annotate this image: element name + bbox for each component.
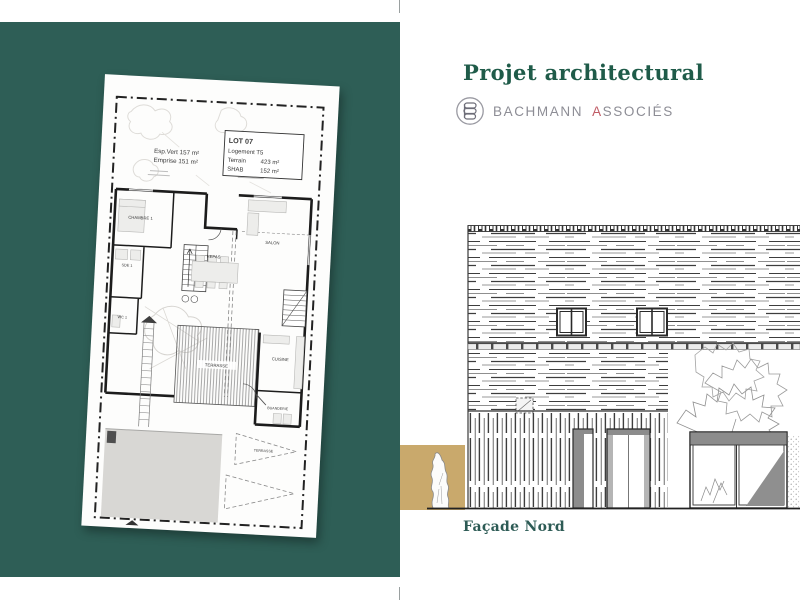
upper-cladding — [468, 232, 800, 343]
room-label-wc1: WC 1 — [117, 315, 127, 319]
facade-drawing — [425, 223, 800, 515]
facade-elevation — [425, 223, 800, 515]
stair-secondary — [282, 290, 307, 327]
north-marker — [125, 520, 138, 526]
brand-block: BACHMANNASSOCIÉS — [455, 96, 674, 126]
door-opening — [607, 429, 650, 508]
roof-cornice — [468, 226, 800, 232]
room-label-cuisine: CUISINE — [272, 356, 289, 362]
window-opening — [573, 429, 593, 508]
brand-name: BACHMANNASSOCIÉS — [493, 104, 674, 119]
room-label-sde1: SDE 1 — [121, 263, 132, 268]
facade-caption: Façade Nord — [463, 519, 565, 535]
center-divider-tick-bottom — [399, 587, 400, 600]
emprise-label: Emprise 151 m² — [153, 157, 198, 166]
patio-area — [101, 429, 222, 523]
lot-title: LOT 07 — [228, 136, 253, 146]
plan-symbol — [182, 295, 189, 302]
mid-cladding — [468, 350, 668, 411]
page-title: Projet architectural — [463, 60, 704, 85]
shrub-sketch — [431, 453, 449, 508]
trellis — [139, 323, 154, 427]
brand-word2-initial: A — [592, 104, 603, 119]
lot-terrain-label: Terrain — [227, 158, 246, 165]
brand-word2-rest: SSOCIÉS — [603, 104, 674, 119]
lot-shab-value: 152 m² — [260, 168, 279, 175]
brand-word1: BACHMANN — [493, 104, 583, 119]
glazed-door-unit — [690, 432, 787, 508]
hatched-strip — [787, 436, 800, 508]
floor-plan-drawing: LOT 07 Logement T5 Terrain 423 m² SHAB 1… — [81, 74, 339, 538]
esp-vert-label: Esp.Vert 157 m² — [154, 148, 199, 157]
utility-box — [107, 431, 117, 443]
attic-window — [637, 309, 667, 336]
attic-window — [557, 309, 586, 336]
center-divider-tick-top — [399, 0, 400, 13]
lot-terrain-value: 423 m² — [260, 159, 279, 166]
lot-shab-label: SHAB — [227, 167, 244, 174]
room-label-buanderie: BUANDERIE — [267, 406, 289, 411]
room-label-salon: SALON — [265, 240, 279, 246]
room-label-repas: REPAS — [207, 254, 221, 260]
trellis-cap — [141, 315, 157, 323]
balustrade-posts — [468, 344, 800, 350]
plan-symbol — [191, 296, 198, 303]
floor-plan-sheet: LOT 07 Logement T5 Terrain 423 m² SHAB 1… — [81, 74, 339, 538]
slide: LOT 07 Logement T5 Terrain 423 m² SHAB 1… — [0, 0, 800, 600]
terrace-triangle — [224, 475, 295, 513]
room-label-terrasse-ext: TERRASSE — [254, 448, 274, 453]
bachmann-monogram-icon — [455, 96, 485, 126]
